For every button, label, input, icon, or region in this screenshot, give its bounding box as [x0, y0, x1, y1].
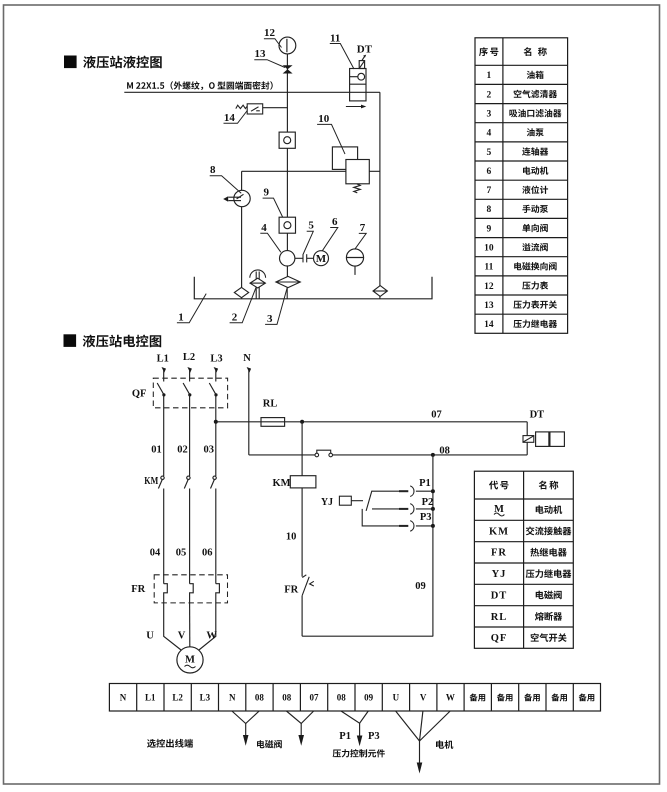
svg-text:YJ: YJ: [492, 569, 507, 580]
svg-text:KM: KM: [273, 478, 291, 489]
svg-text:04: 04: [150, 548, 161, 559]
svg-text:P3: P3: [420, 512, 432, 523]
svg-text:P1: P1: [339, 731, 351, 742]
svg-text:01: 01: [151, 445, 162, 456]
svg-text:8: 8: [487, 205, 492, 215]
svg-text:KM: KM: [144, 476, 158, 487]
svg-text:U: U: [146, 630, 154, 641]
svg-text:7: 7: [487, 186, 492, 196]
svg-text:4: 4: [487, 129, 492, 139]
svg-text:L1: L1: [157, 354, 169, 365]
svg-text:FR: FR: [284, 584, 298, 595]
svg-text:DT: DT: [491, 590, 508, 601]
svg-text:4: 4: [261, 222, 267, 234]
svg-text:1: 1: [178, 311, 184, 323]
svg-text:N: N: [243, 353, 251, 364]
svg-text:05: 05: [176, 548, 187, 559]
svg-text:06: 06: [202, 548, 213, 559]
svg-text:M: M: [185, 655, 195, 666]
svg-text:7: 7: [360, 222, 366, 234]
svg-text:FR: FR: [131, 584, 145, 595]
svg-text:07: 07: [431, 410, 442, 421]
svg-text:6: 6: [332, 216, 338, 228]
svg-text:10: 10: [318, 113, 330, 125]
svg-text:5: 5: [487, 148, 492, 158]
svg-text:08: 08: [255, 693, 265, 703]
svg-text:FR: FR: [491, 548, 507, 559]
svg-text:RL: RL: [263, 399, 278, 410]
svg-text:08: 08: [282, 693, 292, 703]
svg-text:14: 14: [224, 112, 236, 124]
svg-text:13: 13: [255, 48, 267, 60]
svg-text:2: 2: [487, 90, 492, 100]
svg-text:12: 12: [484, 282, 494, 292]
svg-text:10: 10: [484, 244, 494, 254]
svg-text:N: N: [229, 693, 236, 703]
svg-text:3: 3: [487, 110, 492, 120]
svg-text:W: W: [206, 630, 217, 641]
svg-text:M: M: [316, 253, 327, 265]
svg-text:YJ: YJ: [321, 497, 333, 508]
svg-text:U: U: [393, 693, 400, 703]
svg-text:08: 08: [337, 693, 347, 703]
svg-text:L3: L3: [210, 354, 222, 365]
svg-text:V: V: [178, 630, 186, 641]
svg-text:N: N: [120, 693, 127, 703]
svg-text:V: V: [420, 693, 427, 703]
svg-text:09: 09: [364, 693, 374, 703]
svg-text:09: 09: [415, 581, 426, 592]
svg-text:03: 03: [204, 445, 215, 456]
svg-text:2: 2: [232, 311, 238, 323]
svg-text:13: 13: [484, 301, 494, 311]
svg-text:P1: P1: [419, 478, 431, 489]
svg-text:08: 08: [439, 446, 450, 457]
svg-text:6: 6: [487, 167, 492, 177]
svg-text:1: 1: [487, 71, 492, 81]
svg-text:P3: P3: [368, 731, 380, 742]
svg-text:9: 9: [487, 224, 492, 234]
svg-text:L2: L2: [172, 693, 183, 703]
svg-text:P2: P2: [422, 497, 434, 508]
svg-text:8: 8: [210, 164, 216, 176]
svg-text:10: 10: [286, 532, 297, 543]
svg-text:DT: DT: [357, 44, 373, 56]
svg-text:QF: QF: [491, 633, 508, 644]
svg-text:07: 07: [310, 693, 320, 703]
svg-text:12: 12: [264, 27, 276, 39]
svg-text:L1: L1: [145, 693, 156, 703]
svg-text:9: 9: [264, 186, 270, 198]
svg-text:02: 02: [177, 445, 188, 456]
svg-text:3: 3: [267, 313, 273, 325]
svg-text:KM: KM: [489, 526, 509, 537]
svg-text:RL: RL: [491, 612, 508, 623]
svg-text:DT: DT: [530, 410, 545, 421]
svg-text:11: 11: [484, 263, 493, 273]
svg-text:L2: L2: [183, 352, 195, 363]
svg-text:14: 14: [484, 320, 494, 330]
svg-text:W: W: [446, 693, 455, 703]
svg-text:5: 5: [308, 220, 314, 232]
svg-text:11: 11: [330, 32, 340, 44]
svg-text:QF: QF: [132, 388, 147, 399]
svg-text:L3: L3: [200, 693, 211, 703]
